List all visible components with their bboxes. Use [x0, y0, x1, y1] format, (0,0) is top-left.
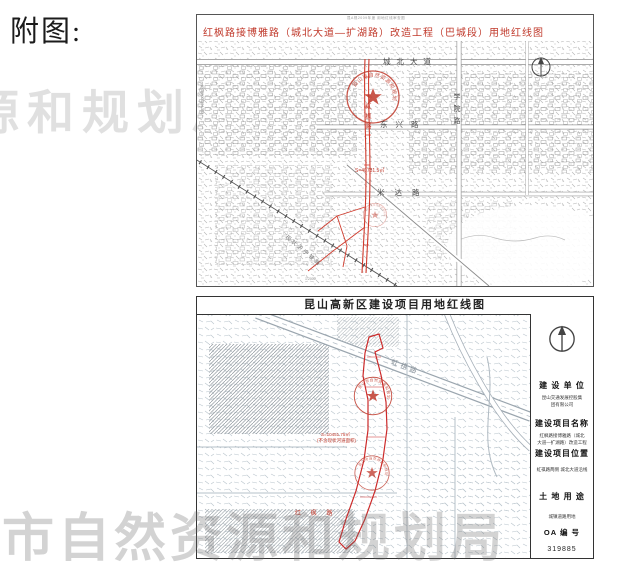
map2-info-panel: 建 设 单 位 昆山交通发展控股集 团有限公司 建设项目名称 红枫路接博雅路（城… [530, 314, 593, 558]
map1-archive-note: 昆A规2009年度 用地红线审查图 [347, 16, 405, 21]
map2-redline-figure: 昆山高新区建设项目用地红线图 虹祺路 S=10451.75㎡ (不含现状河道面积… [196, 296, 594, 559]
map1-scale-note: 1:2000 [305, 277, 316, 281]
map1-margin-micro-text: 苏S(2009)013号 [199, 85, 205, 114]
map1-redline-road-label: 红枫路 [363, 103, 372, 133]
panel-heading-land-use: 土 地 用 途 [531, 491, 593, 502]
map1-title: 红枫路接博雅路（城北大道—扩湖路）改造工程（巴城段）用地红线图 [203, 24, 544, 39]
panel-heading-location: 建设项目位置 [531, 448, 593, 459]
north-arrow-icon [545, 320, 579, 358]
panel-heading-unit: 建 设 单 位 [531, 380, 593, 391]
panel-value-unit-2: 团有限公司 [531, 402, 593, 408]
panel-value-project-name-1: 红枫路接博雅路（城北 [531, 433, 593, 439]
panel-value-project-name-2: 大道—扩湖路）改造工程 [531, 440, 593, 446]
map2-area-text-line2: (不含现状河道面积) [317, 438, 356, 444]
panel-heading-oa-number: OA 编 号 [531, 527, 593, 538]
map1-road-label-right-vertical: 学院路 [451, 93, 461, 129]
panel-value-oa-number: 319885 [531, 546, 593, 553]
map1-road-label-chengbei-avenue: 城北大道 [383, 56, 437, 67]
document-page: 附图: 源和规划局 市自然资源和规划局 [0, 0, 622, 569]
panel-heading-project-name: 建设项目名称 [531, 418, 593, 429]
map1-area-text: S=40731.5㎡ [355, 167, 384, 174]
page-title: 附图: [10, 8, 82, 50]
panel-value-unit-1: 昆山交通发展控股集 [531, 395, 593, 401]
panel-value-land-use: 城镇道路用地 [531, 514, 593, 520]
map1-redline-figure: 昆山市自然资源和规划局 [196, 14, 594, 287]
map2-redline-road-label: 红 枫 路 [295, 508, 336, 517]
map1-road-label-mid: 东兴路 [380, 119, 427, 130]
panel-value-location: 虹祺路两侧 城北大道沿线 [531, 467, 593, 473]
map1-road-label-mid2: 米达路 [377, 187, 430, 198]
map2-title: 昆山高新区建设项目用地红线图 [197, 297, 593, 315]
